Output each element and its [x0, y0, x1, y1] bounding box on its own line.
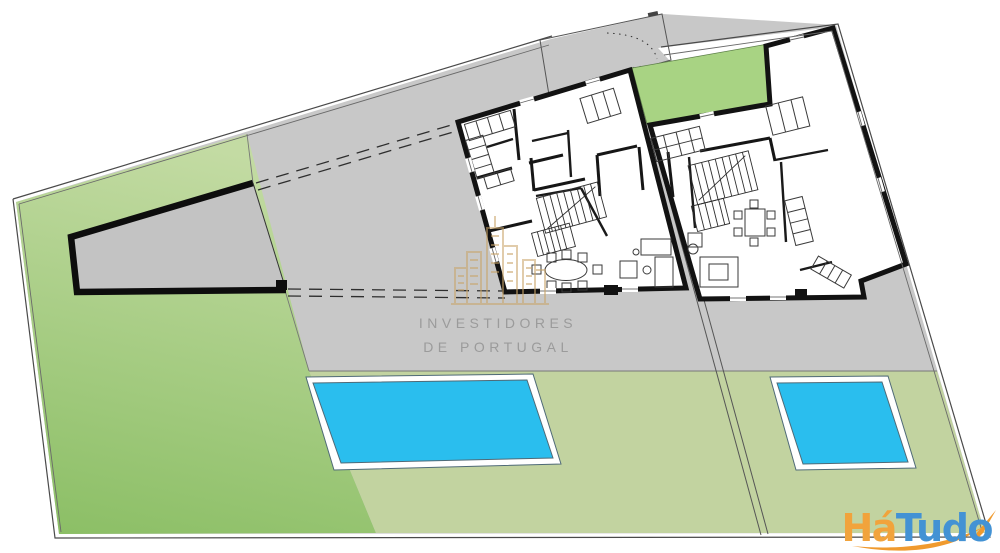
- site-plan-image: INVESTIDORES DE PORTUGAL HáTudo: [0, 0, 1000, 553]
- hatudo-logo: HáTudo: [841, 506, 996, 551]
- pool-left: [306, 374, 561, 470]
- watermark-line2: DE PORTUGAL: [423, 339, 573, 355]
- logo-text-part2: Tudo: [896, 506, 993, 550]
- logo-text-part1: Há: [841, 506, 895, 550]
- floor-plan-drawing: INVESTIDORES DE PORTUGAL HáTudo: [0, 0, 1000, 553]
- logo-text: HáTudo: [841, 506, 992, 550]
- watermark-line1: INVESTIDORES: [419, 315, 577, 331]
